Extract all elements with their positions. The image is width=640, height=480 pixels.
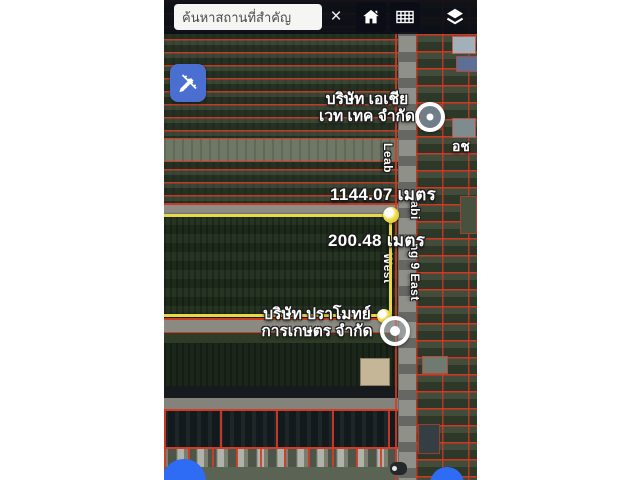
building <box>360 358 390 386</box>
building <box>422 356 448 374</box>
poi-label-line: บริษัท เอเชีย <box>302 92 432 109</box>
home-icon <box>360 6 382 28</box>
measurement-label-right: 200.48 เมตร <box>328 227 425 254</box>
building <box>452 118 476 138</box>
poi-label-line: บริษัท ปราโมทย์ <box>252 307 382 324</box>
farm-road <box>164 398 398 411</box>
poi-label-company2: บริษัท ปราโมทย์ การเกษตร จำกัด <box>252 307 382 340</box>
building <box>452 36 476 54</box>
home-button[interactable] <box>356 2 386 32</box>
marker-center-dot <box>390 326 400 336</box>
field-light-strip <box>164 138 402 162</box>
layers-icon <box>443 5 467 29</box>
road-label-west-lower: West <box>381 253 395 283</box>
poi-label-line: เวท เทค จำกัด <box>302 109 432 126</box>
clear-search-icon[interactable]: × <box>325 4 347 30</box>
measure-vertex-handle[interactable] <box>383 207 399 223</box>
road-vehicle <box>390 462 407 475</box>
place-marker[interactable] <box>380 316 410 346</box>
building <box>418 424 440 454</box>
pencil-ruler-icon <box>176 71 200 95</box>
dark-parcels <box>164 411 398 447</box>
search-input[interactable] <box>174 4 322 30</box>
poi-label-company1: บริษัท เอเชีย เวท เทค จำกัด <box>302 92 432 125</box>
measure-line-top <box>164 214 392 217</box>
top-toolbar: × <box>164 0 477 34</box>
road-label-west-upper: Leab <box>381 143 395 173</box>
measurement-label-top: 1144.07 เมตร <box>330 181 436 208</box>
grid-button[interactable] <box>390 2 420 32</box>
layers-button[interactable] <box>442 4 468 30</box>
grid-icon <box>394 6 416 28</box>
map-canvas[interactable]: Leab West abi ng 9 East บริษัท เอเชีย เว… <box>164 0 477 480</box>
poi-label-line: การเกษตร จำกัด <box>252 324 382 341</box>
poi-label-partial: อช <box>452 136 470 158</box>
building <box>456 56 477 72</box>
building <box>460 196 477 234</box>
draw-tools-button[interactable] <box>170 64 206 102</box>
dark-field-strip <box>164 386 398 398</box>
